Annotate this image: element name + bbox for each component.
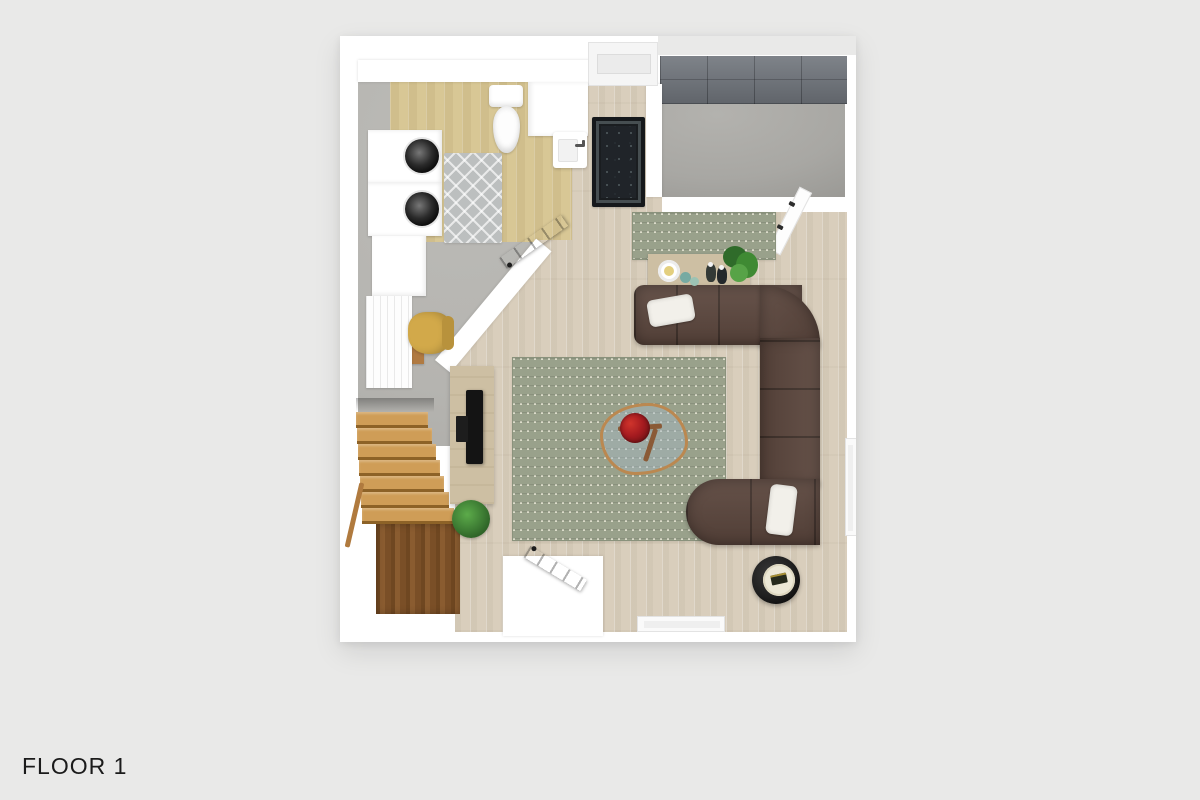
background-notch [658, 36, 856, 55]
stairwell-shadow [356, 398, 434, 412]
stair-tread [360, 476, 444, 492]
door-hinge [788, 201, 795, 207]
entry-tile-wall [660, 56, 847, 104]
floor-label: FLOOR 1 [22, 753, 127, 780]
slatted-cabinet [366, 296, 412, 388]
bottom-window [637, 616, 725, 632]
hall-entry-wall [646, 84, 662, 197]
desk-chair [408, 312, 452, 354]
bath-rug [444, 153, 502, 243]
television [466, 390, 483, 464]
storage-cabinet [372, 236, 426, 296]
entry-porch-floor [662, 100, 845, 197]
bathroom-sink [553, 132, 587, 168]
bathroom-counter [528, 82, 588, 136]
runner-rug [632, 212, 776, 260]
flower-vase [706, 264, 716, 282]
dryer [368, 183, 442, 236]
stair-tread [359, 460, 440, 476]
stair-tread [357, 428, 432, 444]
candle-bowl [658, 260, 680, 282]
media-box [456, 416, 468, 442]
right-window [845, 438, 856, 536]
top-window [588, 42, 658, 86]
oriental-rug [592, 117, 645, 207]
teal-dish [690, 277, 699, 286]
stair-tread [362, 508, 454, 524]
door-hinge [777, 224, 784, 230]
sofa-right-section [760, 338, 820, 486]
sink-basin [558, 139, 578, 162]
window-pane [597, 54, 651, 74]
stair-tread [356, 412, 428, 428]
stair-tread [361, 492, 449, 508]
stair-landing [376, 524, 460, 614]
washer [368, 130, 442, 183]
bathroom-top-wall [358, 60, 612, 82]
toilet-tank [489, 85, 523, 107]
console-plant [730, 264, 748, 282]
red-flower-bouquet [620, 413, 650, 443]
sofa-chaise-section [686, 479, 820, 545]
dryer-drum [405, 192, 439, 226]
flower-vase [717, 267, 727, 284]
round-side-table [752, 556, 800, 604]
stage: FLOOR 1 [0, 0, 1200, 800]
potted-plant [452, 500, 490, 538]
floor-plan [340, 36, 856, 642]
window-pane [848, 445, 853, 531]
window-pane [644, 621, 720, 628]
sink-faucet [575, 144, 585, 147]
washer-drum [405, 139, 439, 173]
stair-tread [358, 444, 436, 460]
